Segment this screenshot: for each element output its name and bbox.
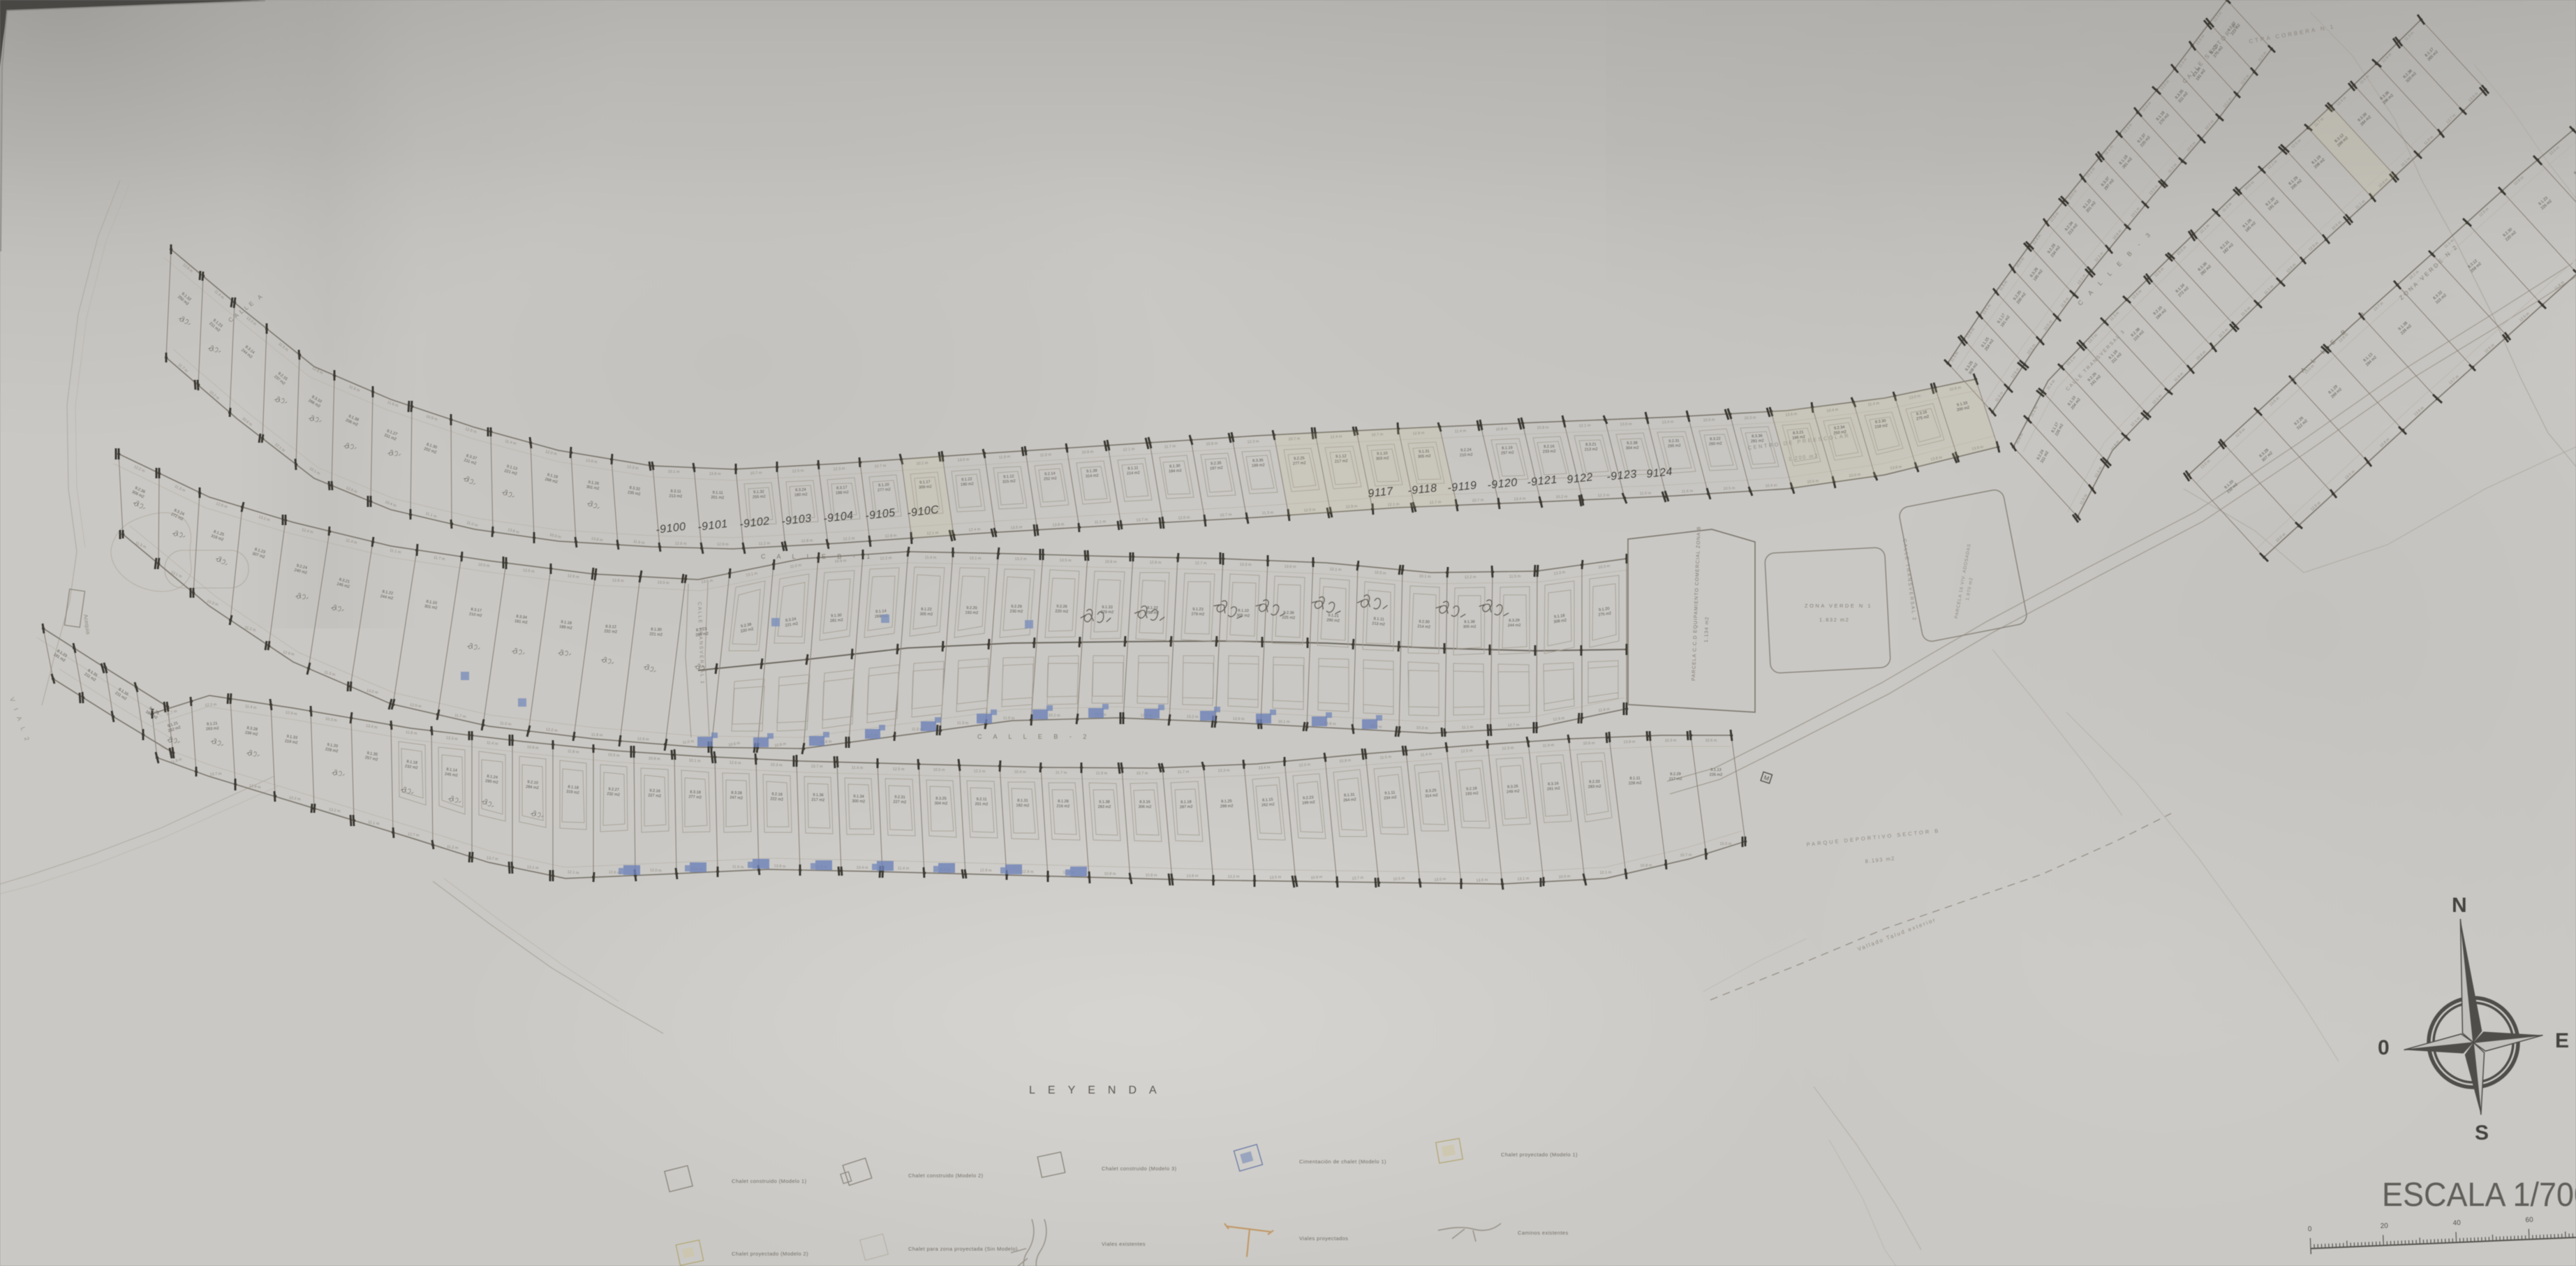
svg-text:299 m2: 299 m2 [1220,804,1234,809]
svg-text:10.0 m: 10.0 m [1558,874,1571,879]
svg-text:LEYENDA: LEYENDA [1029,1084,1169,1096]
svg-text:13.5 m: 13.5 m [1060,559,1072,564]
svg-text:10.7 m: 10.7 m [1371,433,1384,438]
svg-text:10.2 m: 10.2 m [1049,714,1060,719]
svg-text:10.5 m: 10.5 m [1703,418,1715,423]
svg-text:Viales existentes: Viales existentes [1102,1241,1146,1247]
svg-text:12.6 m: 12.6 m [675,542,687,547]
svg-text:9.1.23: 9.1.23 [1192,608,1204,612]
svg-text:13.0 m: 13.0 m [1620,422,1631,427]
svg-text:Chalet proyectado (Modelo 2): Chalet proyectado (Modelo 2) [732,1251,808,1257]
svg-text:201 m2: 201 m2 [975,802,989,807]
svg-text:12.1 m: 12.1 m [1123,447,1135,452]
svg-text:9.1.12: 9.1.12 [1335,455,1347,459]
svg-text:11.8 m: 11.8 m [591,733,603,738]
svg-text:10.1 m: 10.1 m [1278,720,1290,725]
svg-text:0: 0 [2378,1036,2390,1059]
svg-text:9.1.31: 9.1.31 [1419,450,1430,455]
svg-text:12.9 m: 12.9 m [637,737,649,742]
svg-text:13.1 m: 13.1 m [1517,876,1530,881]
svg-text:9.2.33: 9.2.33 [1589,780,1600,785]
svg-text:9.2.29: 9.2.29 [1670,772,1681,776]
svg-text:12.9 m: 12.9 m [1345,505,1358,510]
svg-text:ESCALA 1/700: ESCALA 1/700 [2382,1177,2576,1214]
svg-text:11.1 m: 11.1 m [1095,520,1106,524]
svg-text:10.7 m: 10.7 m [1472,499,1484,503]
svg-text:9.1.11: 9.1.11 [712,491,723,496]
svg-text:12.1 m: 12.1 m [1329,567,1342,572]
svg-text:13.4 m: 13.4 m [1513,497,1526,502]
svg-text:10.6 m: 10.6 m [1705,739,1717,743]
svg-text:9.1.32: 9.1.32 [753,490,764,495]
svg-text:9.1.38: 9.1.38 [1464,620,1475,624]
svg-text:10.3 m: 10.3 m [1416,726,1428,731]
svg-text:1.134 m2: 1.134 m2 [1704,617,1710,642]
svg-text:Chalet para zona proyectada (S: Chalet para zona proyectada (Sin Modelo) [908,1246,1018,1252]
svg-text:12.4 m: 12.4 m [1330,435,1342,440]
svg-text:12.2 m: 12.2 m [843,536,855,541]
svg-text:277 m2: 277 m2 [688,795,702,800]
svg-text:199 m2: 199 m2 [1252,464,1265,469]
svg-text:10.8 m: 10.8 m [1495,427,1508,432]
svg-text:13.8 m: 13.8 m [773,864,786,869]
svg-text:13.2 m: 13.2 m [1227,875,1239,880]
svg-text:227 m2: 227 m2 [893,800,906,805]
svg-text:12.5 m: 12.5 m [893,767,905,772]
svg-text:9.1.10: 9.1.10 [1377,452,1388,457]
svg-text:300 m2: 300 m2 [852,800,865,804]
svg-text:8.1.28: 8.1.28 [1058,800,1069,804]
svg-text:303 m2: 303 m2 [1376,457,1389,462]
svg-text:8.3.24: 8.3.24 [795,488,806,493]
svg-text:13.8 m: 13.8 m [1186,874,1198,879]
svg-text:201 m2: 201 m2 [711,496,724,501]
svg-text:13.9 m: 13.9 m [1623,740,1635,745]
svg-text:222 m2: 222 m2 [770,797,783,802]
svg-text:9.2.38: 9.2.38 [1627,441,1638,446]
svg-text:304 m2: 304 m2 [1626,446,1639,451]
svg-text:12.1 m: 12.1 m [1599,871,1611,876]
svg-text:11.6 m: 11.6 m [1682,490,1694,494]
svg-text:9.1.22: 9.1.22 [961,477,972,482]
svg-text:304 m2: 304 m2 [935,802,948,806]
svg-text:11.4 m: 11.4 m [852,766,864,771]
svg-text:C A L L E B - 1: C A L L E B - 1 [761,553,875,560]
svg-text:11.4 m: 11.4 m [898,867,910,871]
svg-text:8.3.21: 8.3.21 [1585,443,1597,448]
svg-text:217 m2: 217 m2 [1669,777,1682,781]
svg-text:12.7 m: 12.7 m [1508,723,1520,728]
svg-text:8.1.30: 8.1.30 [651,628,662,633]
svg-text:9.1.33: 9.1.33 [1102,605,1113,610]
svg-text:11.9 m: 11.9 m [999,455,1011,459]
svg-text:11.0 m: 11.0 m [1003,716,1015,721]
svg-text:8.3.11: 8.3.11 [670,490,681,494]
svg-text:12.5 m: 12.5 m [792,469,804,474]
svg-text:9.1.12: 9.1.12 [1003,474,1014,479]
svg-text:13.8 m: 13.8 m [1052,522,1065,527]
svg-text:233 m2: 233 m2 [1543,450,1556,455]
svg-text:10.3 m: 10.3 m [770,763,783,768]
svg-text:11.7 m: 11.7 m [1178,770,1190,775]
svg-text:12.4 m: 12.4 m [968,527,981,532]
svg-text:9.2.11: 9.2.11 [976,797,986,802]
svg-text:10.9 m: 10.9 m [1537,426,1548,431]
svg-text:9.1.34: 9.1.34 [853,795,864,800]
svg-text:13.2 m: 13.2 m [1015,557,1027,561]
svg-text:260 m2: 260 m2 [1709,442,1722,447]
svg-text:287 m2: 287 m2 [1180,805,1193,810]
svg-text:12.2 m: 12.2 m [880,556,892,561]
svg-text:9.2.24: 9.2.24 [1460,448,1472,453]
svg-text:228 m2: 228 m2 [1629,781,1642,786]
svg-text:11.1 m: 11.1 m [1462,726,1474,730]
svg-text:213 m2: 213 m2 [1585,448,1598,452]
svg-text:12.2 m: 12.2 m [205,702,217,707]
svg-text:13.0 m: 13.0 m [957,457,970,462]
svg-text:Cimentación de chalet (Modelo: Cimentación de chalet (Modelo 1) [1299,1158,1386,1165]
svg-text:182 m2: 182 m2 [1016,804,1030,808]
svg-text:Chalet construido (Modelo 2): Chalet construido (Modelo 2) [908,1172,984,1179]
svg-text:S: S [2475,1121,2489,1144]
svg-text:11.7 m: 11.7 m [1056,771,1067,775]
svg-text:225 m2: 225 m2 [1282,616,1295,621]
svg-text:8.1.31: 8.1.31 [1017,799,1028,803]
svg-text:10.9 m: 10.9 m [834,559,847,564]
svg-text:Chalet construido (Modelo 3): Chalet construido (Modelo 3) [1102,1165,1177,1172]
svg-text:9.2.31: 9.2.31 [1668,439,1680,444]
svg-text:13.6 m: 13.6 m [1476,878,1488,883]
svg-text:283 m2: 283 m2 [1588,785,1601,790]
svg-text:12.1 m: 12.1 m [926,531,939,536]
svg-text:10.2 m: 10.2 m [1555,495,1567,500]
svg-text:13.4 m: 13.4 m [1661,420,1674,425]
svg-text:214 m2: 214 m2 [1417,625,1430,630]
svg-text:13.7 m: 13.7 m [1136,517,1148,522]
svg-text:11.3 m: 11.3 m [1262,511,1274,516]
svg-text:12.6 m: 12.6 m [1150,561,1162,565]
svg-text:11.2 m: 11.2 m [759,542,771,547]
svg-text:12.3 m: 12.3 m [1247,440,1259,445]
svg-text:12.1 m: 12.1 m [1578,424,1590,429]
svg-text:13.6 m: 13.6 m [1285,565,1296,570]
svg-text:ZONA VERDE N 1: ZONA VERDE N 1 [1805,603,1872,609]
svg-text:12.1 m: 12.1 m [1387,503,1400,508]
svg-text:217 m2: 217 m2 [1335,459,1348,464]
svg-text:8.1.19: 8.1.19 [1502,446,1513,451]
svg-text:0: 0 [2308,1225,2312,1233]
svg-text:11.3 m: 11.3 m [957,721,969,726]
svg-text:9.1.39: 9.1.39 [1086,469,1097,473]
svg-text:10.5 m: 10.5 m [933,768,945,772]
svg-text:8.3.17: 8.3.17 [836,485,847,490]
svg-text:13.4 m: 13.4 m [1258,765,1271,770]
svg-text:13.3 m: 13.3 m [1217,769,1229,774]
svg-text:12.9 m: 12.9 m [717,543,729,547]
svg-text:10.7 m: 10.7 m [1137,772,1148,776]
svg-text:255 m2: 255 m2 [753,495,766,500]
svg-text:8.1.18: 8.1.18 [1180,800,1192,805]
svg-text:C A L L E B - 2: C A L L E B - 2 [977,733,1091,740]
svg-text:8.3.22: 8.3.22 [1710,437,1721,442]
svg-text:10.1 m: 10.1 m [688,759,701,764]
svg-text:295 m2: 295 m2 [1668,444,1681,449]
svg-text:10.8 m: 10.8 m [1104,872,1116,876]
svg-text:8.3.36: 8.3.36 [1752,434,1763,439]
svg-text:9.2.35: 9.2.35 [1211,461,1222,466]
svg-text:13.2 m: 13.2 m [1187,715,1199,719]
svg-text:12.8 m: 12.8 m [801,539,813,544]
svg-text:12.3 m: 12.3 m [1597,494,1609,499]
svg-text:9.1.14: 9.1.14 [875,609,887,614]
svg-text:10.6 m: 10.6 m [1583,742,1594,746]
svg-text:9.1.17: 9.1.17 [919,480,931,485]
svg-text:10.7 m: 10.7 m [1680,853,1692,858]
svg-text:10.1 m: 10.1 m [916,461,928,466]
svg-text:10.8 m: 10.8 m [1105,560,1117,564]
svg-text:12.3 m: 12.3 m [1502,746,1514,751]
svg-text:12.2 m: 12.2 m [974,770,986,774]
svg-text:13.9 m: 13.9 m [1233,717,1245,722]
svg-text:11.9 m: 11.9 m [1096,772,1108,776]
svg-text:281 m2: 281 m2 [1751,439,1764,444]
svg-text:306 m2: 306 m2 [1139,805,1152,809]
svg-text:13.7 m: 13.7 m [811,765,823,770]
svg-text:11.9 m: 11.9 m [1543,743,1555,748]
svg-text:8.3.16: 8.3.16 [1139,800,1150,804]
svg-text:9.1.30: 9.1.30 [831,613,842,618]
svg-text:277 m2: 277 m2 [1293,462,1306,466]
svg-text:10.7 m: 10.7 m [874,464,887,469]
svg-text:20: 20 [2381,1222,2389,1230]
svg-text:8.3.35: 8.3.35 [1252,459,1264,464]
svg-text:10.4 m: 10.4 m [1765,484,1777,489]
svg-text:12.3 m: 12.3 m [833,466,845,471]
svg-text:10.9 m: 10.9 m [1081,450,1094,455]
svg-text:12.0 m: 12.0 m [1178,515,1190,520]
svg-text:12.7 m: 12.7 m [1195,561,1207,566]
svg-text:283 m2: 283 m2 [1098,805,1111,809]
svg-text:8.1.30: 8.1.30 [1169,464,1180,469]
svg-text:8.1.20: 8.1.20 [878,483,889,487]
svg-text:13.4 m: 13.4 m [857,866,868,871]
svg-text:10.9 m: 10.9 m [648,756,660,761]
svg-text:232 m2: 232 m2 [604,630,617,635]
svg-text:8.3.29: 8.3.29 [1509,619,1520,623]
svg-text:N: N [2452,894,2467,917]
svg-text:Caminos existentes: Caminos existentes [1518,1230,1569,1236]
svg-text:10.8 m: 10.8 m [1146,874,1157,878]
svg-text:305 m2: 305 m2 [1418,455,1431,459]
svg-text:9.2.18: 9.2.18 [1466,786,1477,791]
svg-text:210 m2: 210 m2 [1460,453,1473,458]
svg-text:9.2.31: 9.2.31 [894,795,905,800]
svg-text:8.1.11: 8.1.11 [1629,776,1640,781]
svg-text:12.2 m: 12.2 m [1465,575,1476,580]
svg-text:8.3.18: 8.3.18 [690,790,701,795]
svg-text:12.5 m: 12.5 m [1460,749,1473,753]
svg-text:40: 40 [2452,1219,2461,1227]
svg-text:13.0 m: 13.0 m [657,581,669,586]
svg-text:11.4 m: 11.4 m [1455,429,1467,434]
svg-text:216 m2: 216 m2 [1057,804,1070,809]
svg-text:11.6 m: 11.6 m [732,865,744,870]
svg-text:Viales proyectados: Viales proyectados [1299,1235,1348,1242]
svg-text:9.2.29: 9.2.29 [1011,605,1022,609]
svg-text:247 m2: 247 m2 [730,796,743,801]
svg-text:226 m2: 226 m2 [1710,773,1723,777]
svg-text:8.3.12: 8.3.12 [605,625,616,630]
svg-text:8.1.25: 8.1.25 [1221,800,1232,804]
svg-text:E: E [2555,1029,2569,1052]
svg-text:180 m2: 180 m2 [794,493,808,498]
svg-text:1.832 m2: 1.832 m2 [1819,617,1849,623]
svg-text:10.7 m: 10.7 m [1288,437,1301,442]
svg-text:9.2.16: 9.2.16 [771,793,783,797]
svg-text:9.1.38: 9.1.38 [1099,800,1110,804]
svg-text:10.5 m: 10.5 m [1723,487,1735,492]
svg-text:9.1.13: 9.1.13 [1710,768,1722,772]
svg-text:10.1 m: 10.1 m [668,470,680,475]
svg-text:12.0 m: 12.0 m [1303,508,1316,513]
svg-text:10.3 m: 10.3 m [1744,416,1756,421]
svg-text:221 m2: 221 m2 [649,633,662,638]
svg-text:9.2.14: 9.2.14 [1044,471,1056,476]
svg-text:8.3.28: 8.3.28 [731,791,742,796]
svg-text:230 m2: 230 m2 [1010,610,1023,614]
svg-text:Chalet proyectado (Modelo 1): Chalet proyectado (Modelo 1) [1501,1151,1578,1158]
svg-text:11.7 m: 11.7 m [1164,444,1176,449]
svg-text:9.2.26: 9.2.26 [1056,605,1067,610]
svg-text:8.1.15: 8.1.15 [1262,797,1273,802]
svg-text:217 m2: 217 m2 [811,798,824,803]
svg-text:10.0 m: 10.0 m [1720,842,1732,846]
svg-text:10.1 m: 10.1 m [1419,575,1431,580]
svg-text:10.7 m: 10.7 m [750,471,762,476]
svg-text:13.1 m: 13.1 m [970,557,982,561]
svg-text:13.8 m: 13.8 m [709,472,721,477]
svg-text:13.7 m: 13.7 m [209,772,222,776]
svg-text:8.1.21: 8.1.21 [207,721,218,726]
svg-text:12.0 m: 12.0 m [649,868,662,873]
svg-text:11.0 m: 11.0 m [1040,452,1052,457]
svg-text:9.1.21: 9.1.21 [1328,613,1339,618]
svg-text:9.1.36: 9.1.36 [813,793,824,798]
svg-text:13.3 m: 13.3 m [1240,563,1252,568]
svg-text:8.1.11: 8.1.11 [1127,466,1139,471]
svg-text:8.1.22: 8.1.22 [921,608,932,612]
svg-text:12.7 m: 12.7 m [1429,501,1442,506]
svg-text:244 m2: 244 m2 [1508,624,1521,628]
svg-text:60: 60 [2525,1216,2533,1224]
svg-text:8.3.26: 8.3.26 [1507,784,1518,789]
svg-text:279 m2: 279 m2 [1192,612,1205,617]
svg-text:10.8 m: 10.8 m [1640,864,1652,869]
svg-text:Chalet construido (Modelo 1): Chalet construido (Modelo 1) [732,1178,807,1184]
svg-text:13.8 m: 13.8 m [612,579,624,584]
svg-text:12.6 m: 12.6 m [729,761,741,766]
svg-text:12.9 m: 12.9 m [1022,870,1034,874]
svg-text:8.1.10: 8.1.10 [1238,609,1249,614]
svg-text:213 m2: 213 m2 [669,494,682,499]
svg-text:9.2.16: 9.2.16 [1544,445,1555,450]
svg-text:9.2.16: 9.2.16 [649,788,660,793]
svg-text:10.7 m: 10.7 m [1220,513,1232,517]
svg-text:13.5 m: 13.5 m [1269,875,1282,880]
svg-text:11.5 m: 11.5 m [1509,575,1521,579]
svg-text:9.2.20: 9.2.20 [966,606,977,610]
svg-text:193 m2: 193 m2 [965,611,979,615]
svg-text:11.4 m: 11.4 m [925,556,937,560]
svg-text:10.8 m: 10.8 m [1206,441,1218,446]
svg-text:13.5 m: 13.5 m [1010,525,1023,530]
svg-text:10.4 m: 10.4 m [1014,770,1026,774]
svg-text:9.2.30: 9.2.30 [1419,620,1430,625]
svg-text:12.8 m: 12.8 m [1412,432,1425,436]
svg-text:9.2.25: 9.2.25 [1294,457,1305,462]
svg-text:305 m2: 305 m2 [920,612,933,617]
svg-text:220 m2: 220 m2 [1055,610,1068,614]
svg-text:12.8 m: 12.8 m [884,533,897,538]
svg-text:12.9 m: 12.9 m [980,869,992,873]
svg-text:10.3 m: 10.3 m [1665,739,1677,743]
svg-text:11.0 m: 11.0 m [1640,492,1652,496]
svg-text:8.3.25: 8.3.25 [935,797,947,801]
svg-text:297 m2: 297 m2 [1501,451,1514,456]
svg-text:305 m2: 305 m2 [1463,625,1476,629]
svg-text:8.3.16: 8.3.16 [1548,781,1559,786]
